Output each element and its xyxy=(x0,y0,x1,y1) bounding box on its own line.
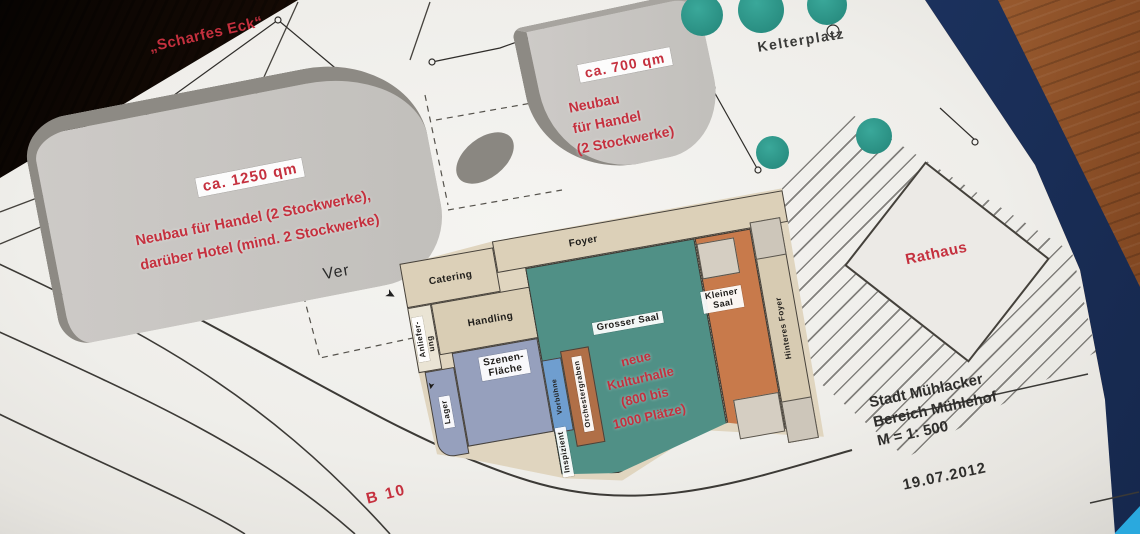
tree-icon xyxy=(756,136,789,169)
delivery-arrow-icon: ➤ xyxy=(425,381,437,390)
site-plan-photo: Foyer Catering Handling Szenen- Fläche G… xyxy=(0,0,1140,534)
room-side-square xyxy=(696,237,740,279)
room-side-square xyxy=(750,217,787,260)
room-side-square xyxy=(733,392,785,439)
tree-icon xyxy=(856,118,892,154)
